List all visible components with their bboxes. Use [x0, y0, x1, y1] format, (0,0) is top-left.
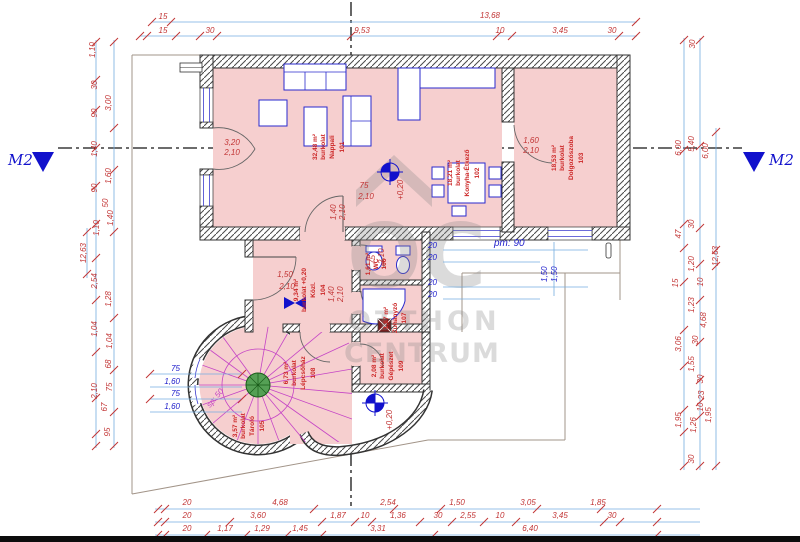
dim-label: 1,29	[254, 524, 270, 533]
room-floor: burkolat	[455, 159, 462, 185]
window	[200, 175, 213, 206]
dim-label: 1,04	[90, 321, 99, 337]
tower-window	[195, 359, 200, 378]
dim-label: 90	[90, 108, 99, 117]
room-area: 3,57 m²	[232, 414, 239, 437]
room-number: 103	[578, 152, 585, 163]
room-number: 105	[259, 420, 266, 431]
corner-sofa	[343, 96, 371, 146]
dim-label: 1,60	[104, 168, 113, 184]
dim-label: 6,00	[701, 143, 710, 159]
door-size: 2,10	[278, 282, 295, 291]
dim-label: 2,54	[90, 273, 99, 290]
section-marker-label-left: M2	[7, 151, 33, 169]
door-size: 75	[360, 181, 369, 190]
room-name: Konyha-Étkező	[462, 149, 471, 196]
dim-label: 30	[608, 511, 617, 520]
dim-label: 3,31	[370, 524, 386, 533]
sofa	[284, 64, 346, 90]
dim-label: 1,40	[106, 210, 115, 226]
dim-label: 20	[182, 524, 192, 533]
dim-label: 2,55	[459, 511, 476, 520]
dim-label: 12,63	[79, 242, 88, 263]
dim-label: 20	[427, 253, 437, 262]
watermark-line2: CENTRUM	[344, 338, 500, 369]
bottom-border	[0, 536, 800, 542]
chimney	[180, 63, 202, 72]
window-size: 1,50	[550, 266, 559, 282]
room-name: Közl.	[310, 282, 317, 298]
dim-label: 1,26	[689, 417, 698, 433]
door-size: 3,20	[224, 138, 240, 147]
dim-label: 1,10	[88, 42, 97, 58]
dim-label: 15	[159, 26, 168, 35]
dim-label: 1,60	[164, 377, 180, 386]
dim-label: 1,40	[90, 141, 99, 157]
entry-handle	[606, 243, 611, 258]
door-size: 2,10	[357, 192, 374, 201]
dim-label: 30	[691, 335, 700, 344]
dim-label: 3,60	[250, 511, 266, 520]
door-size: 1,40	[329, 204, 338, 220]
dim-label: 10	[696, 277, 705, 286]
dim-label: 20	[427, 278, 437, 287]
dim-chain-left: 1,10 30 3,00 90 1,40 1,60 90 50 1,40 1,1…	[79, 42, 115, 437]
dim-label: 10	[496, 511, 505, 520]
dim-label: 1,28	[104, 291, 113, 307]
dim-label: 75	[171, 364, 180, 373]
room-number: 107	[401, 312, 408, 323]
door-size: 1,50	[277, 270, 293, 279]
dim-label: 23	[697, 390, 706, 400]
dim-label: 30	[688, 39, 697, 48]
room-name: Nappali	[329, 135, 336, 159]
dim-label: 3,00	[104, 95, 113, 111]
door-size: 2,10	[223, 148, 240, 157]
room-area: 32,48 m²	[312, 133, 319, 160]
dim-label: 30	[206, 26, 215, 35]
dim-label: 1,20	[687, 256, 696, 272]
dim-label: 30	[608, 26, 617, 35]
room-number: 104	[320, 284, 327, 295]
stair-hub	[246, 373, 270, 397]
dim-label: 1,17	[217, 524, 233, 533]
door-size: 75	[368, 255, 377, 264]
dim-label: 67	[100, 402, 109, 411]
dim-label: 9,53	[354, 26, 370, 35]
dim-label: 30	[696, 374, 705, 383]
room-name: Lépcsőház	[300, 355, 307, 389]
section-triangle-icon	[743, 152, 765, 172]
room-floor: burkolat +0,20	[301, 268, 308, 312]
dim-label: 3,05	[520, 498, 536, 507]
room-number: 102	[474, 167, 481, 178]
room-area: 18,21 m²	[447, 159, 454, 186]
dim-label: 20	[427, 290, 437, 299]
dim-label: 30	[90, 80, 99, 89]
level-value: +0,20	[385, 409, 394, 430]
door-size: 2,10	[377, 248, 386, 265]
dim-label: 3,45	[552, 26, 568, 35]
dim-label: 1,60	[164, 402, 180, 411]
watermark-line1: OTTHON	[348, 306, 501, 337]
section-triangle-icon	[32, 152, 54, 172]
dim-label: 10	[361, 511, 370, 520]
dim-label: 1,55	[687, 356, 696, 372]
room-floor: burkolat	[559, 144, 566, 170]
dim-chain-bottom: 20 4,68 2,54 1,50 3,05 1,85 20 3,60 1,87…	[182, 498, 617, 533]
dim-chain-right: 30 5,40 6,00 6,00 30 47 1,20 12,63 15 10…	[671, 39, 720, 463]
dim-label: 68	[104, 359, 113, 368]
room-area: 18,53 m²	[551, 144, 558, 171]
dim-label: 75	[171, 389, 180, 398]
room-number: 101	[339, 141, 346, 152]
room-name: Tároló	[249, 416, 256, 436]
dim-label: 13,68	[480, 11, 501, 20]
dim-label: 95	[103, 427, 112, 436]
dim-label: 90	[90, 183, 99, 192]
level-value: +0,20	[396, 179, 405, 200]
room-number: 108	[310, 367, 317, 378]
dim-label: 30	[434, 511, 443, 520]
dim-chain-top: 15 13,68 15 30 9,53 10 3,45 30	[159, 11, 617, 35]
tower-window	[195, 385, 198, 404]
dim-label: 75	[105, 382, 114, 391]
room-floor: burkolat	[379, 352, 386, 378]
dim-label: 1,50	[449, 498, 465, 507]
dim-label: 12,63	[711, 245, 720, 266]
window	[548, 227, 592, 240]
dim-label: 1,87	[330, 511, 346, 520]
dim-label: 30	[687, 219, 696, 228]
room-floor: burkolat	[291, 359, 298, 385]
armchair	[259, 100, 287, 126]
dim-label: 4,68	[699, 312, 708, 328]
room-area: 6,73 m²	[283, 361, 290, 384]
room-floor: burkolat	[240, 412, 247, 438]
dim-label: 47	[674, 229, 683, 238]
dim-label: 15	[671, 278, 680, 287]
dim-label: 1,36	[390, 511, 406, 520]
dim-label: 3,06	[674, 336, 683, 352]
dim-label: 1,04	[105, 333, 114, 349]
dim-label: 15	[159, 12, 168, 21]
dim-label: 1,10	[92, 220, 101, 236]
room-name: Gépészet	[388, 351, 395, 381]
floor-plan-canvas: OC OTTHON CENTRUM M2 M2 +0,20 +0,20	[0, 0, 800, 542]
dim-label: 6,40	[522, 524, 538, 533]
dim-label: 5,40	[687, 136, 696, 152]
room-number: 109	[398, 360, 405, 371]
window-size: 1,50	[540, 266, 549, 282]
dim-label: 3,45	[552, 511, 568, 520]
dim-label: 6,00	[674, 140, 683, 156]
dim-label: 1,45	[292, 524, 308, 533]
room-name: Dolgozószoba	[568, 136, 575, 180]
dim-label: 1,95	[704, 407, 713, 423]
dim-label: 2,54	[379, 498, 396, 507]
door-size: 2,10	[336, 286, 345, 303]
room-area: 1,87 m²	[383, 306, 390, 329]
room-floor: burkolat	[320, 133, 327, 159]
dim-label: 20	[182, 498, 192, 507]
dim-label: 1,85	[590, 498, 606, 507]
dim-label: 50	[101, 198, 110, 207]
section-marker-label-right: M2	[768, 151, 794, 169]
door-size: 2,10	[522, 146, 539, 155]
dim-label: 1,23	[687, 297, 696, 313]
dim-label: 10	[496, 26, 505, 35]
dim-label: 4,68	[272, 498, 288, 507]
dim-label: 20	[427, 241, 437, 250]
dim-label: 2,10	[90, 383, 99, 400]
dim-label: 20	[182, 511, 192, 520]
door-size: 1,60	[523, 136, 539, 145]
dim-label: 30	[687, 454, 696, 463]
parapet-note: pm: 90	[493, 238, 525, 249]
door-size: 1,40	[327, 286, 336, 302]
dim-label: 1,95	[674, 412, 683, 428]
room-name: Zuhanyzó	[392, 303, 399, 333]
door-size: 2,10	[338, 204, 347, 221]
window	[200, 88, 213, 122]
room-area: 2,08 m²	[371, 354, 378, 377]
